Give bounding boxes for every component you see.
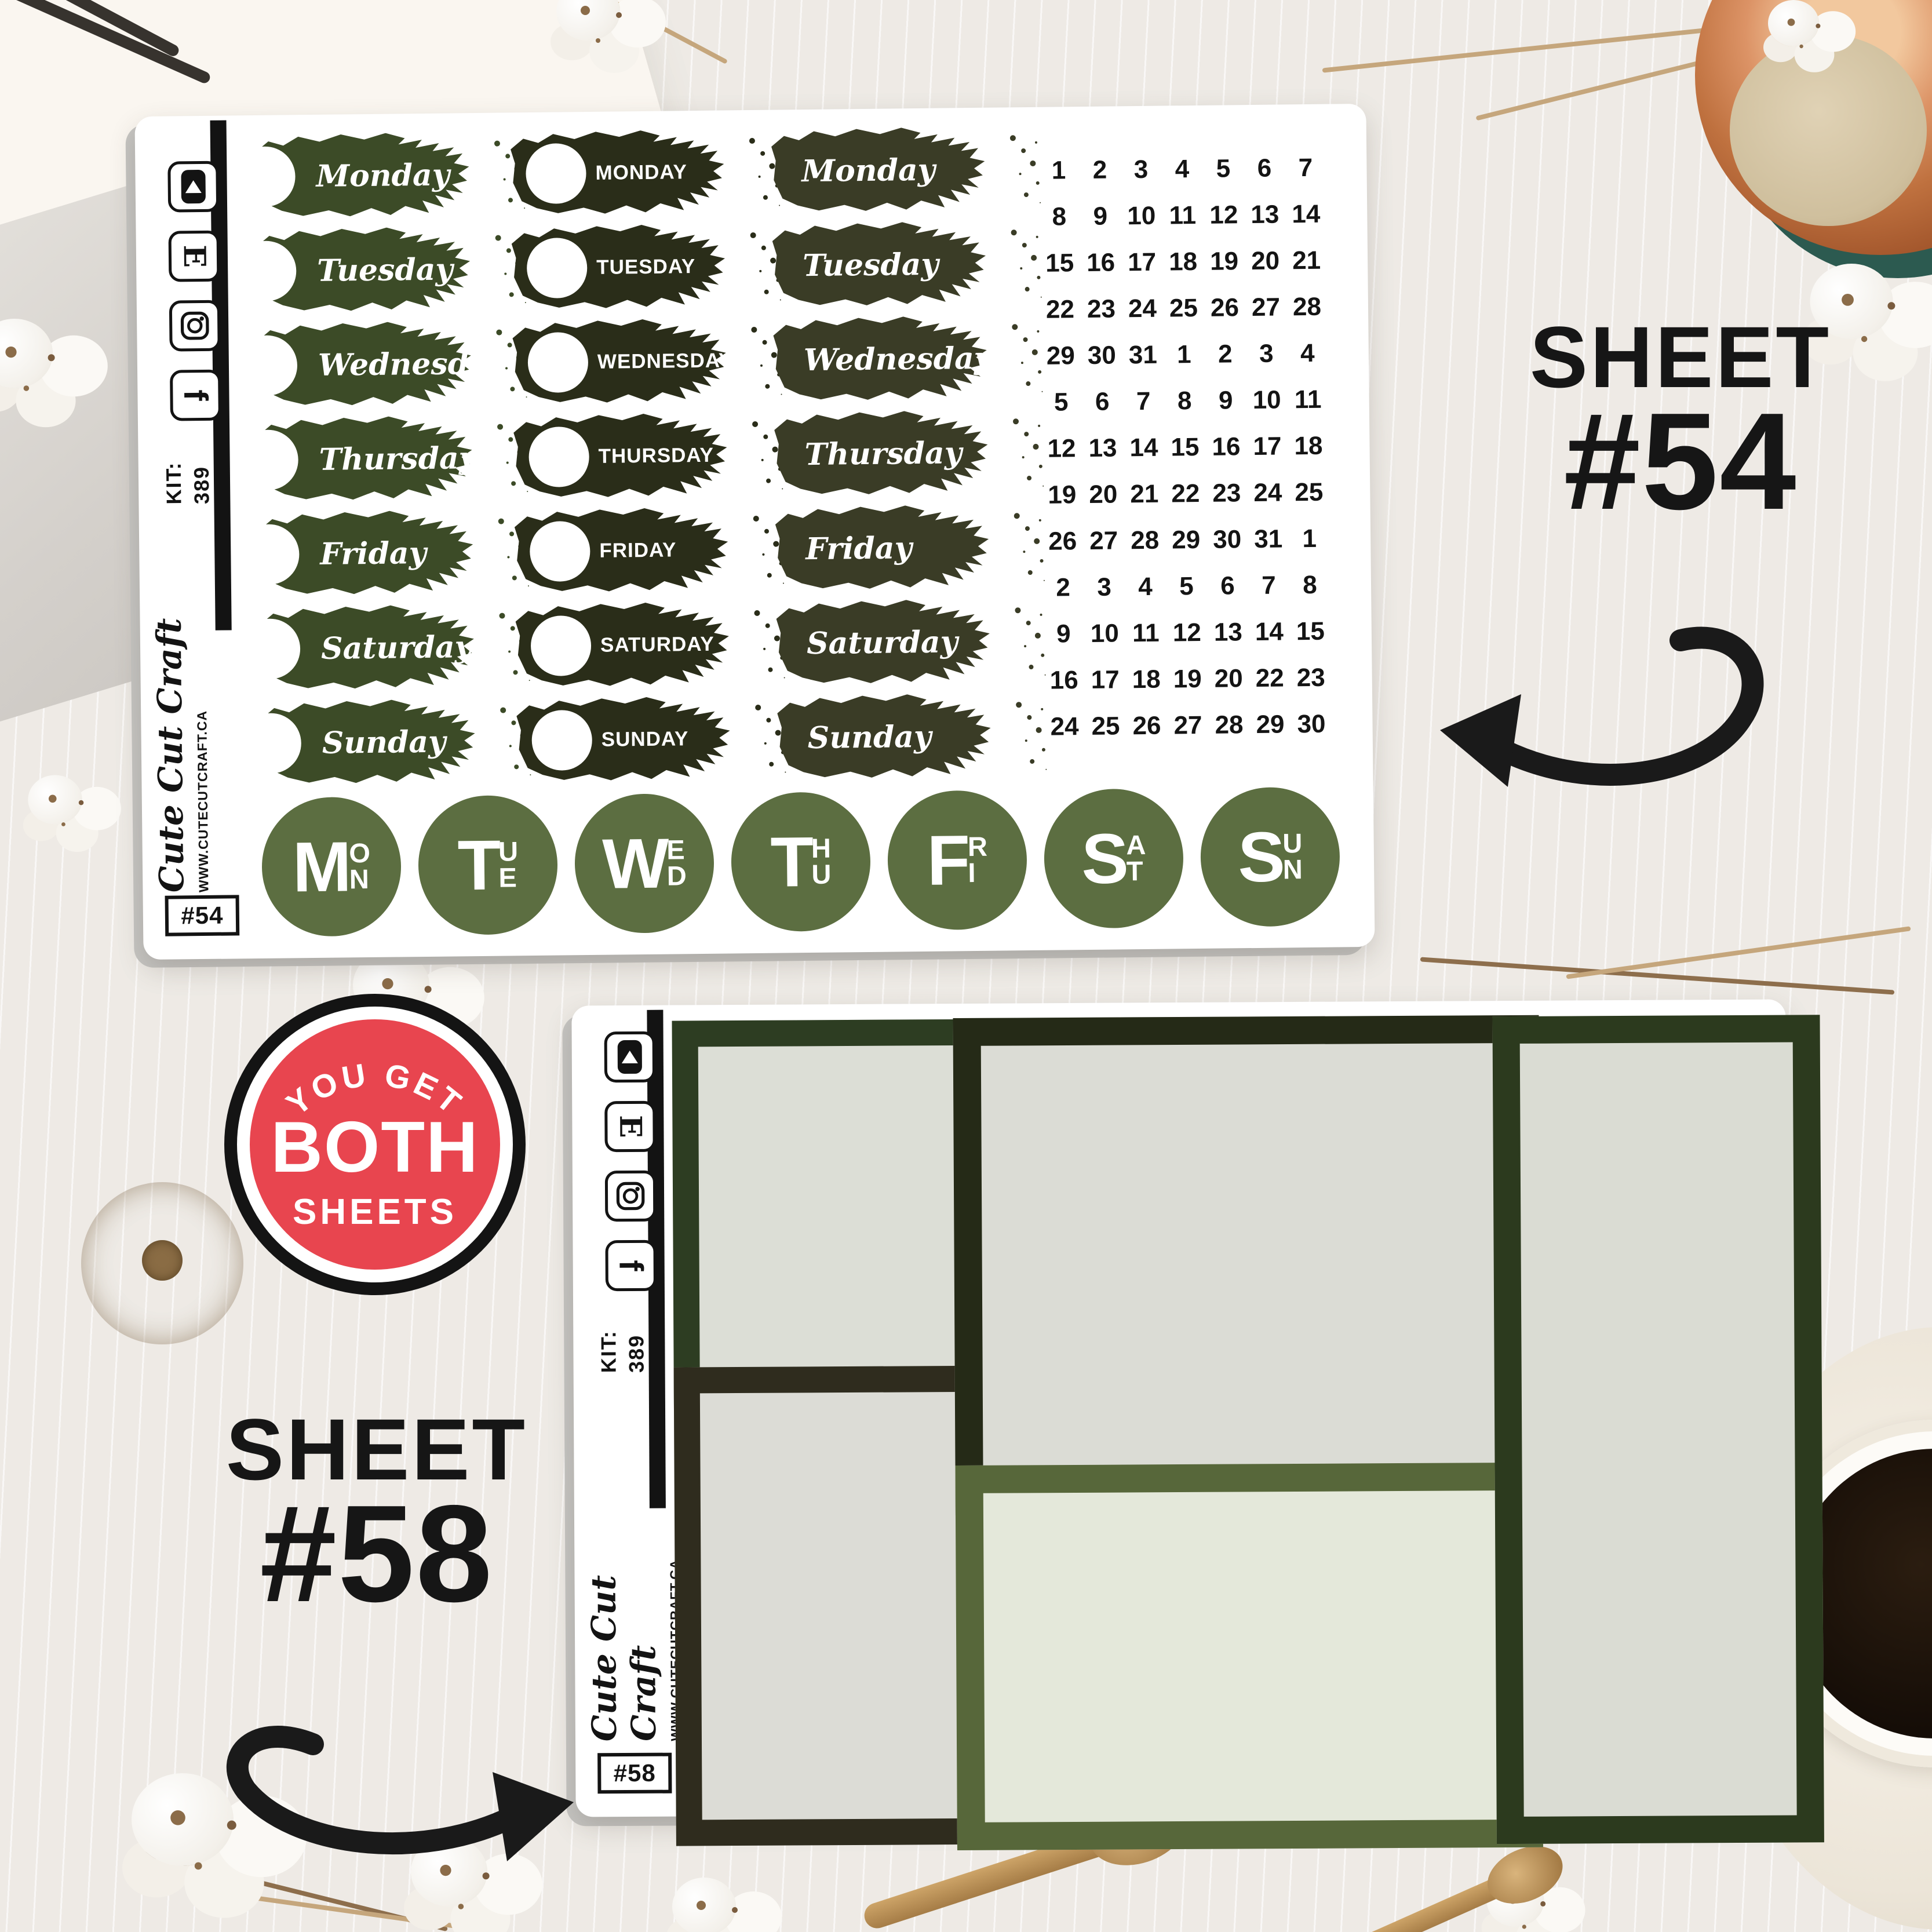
date-number: 25 (1288, 469, 1330, 516)
brand-block: Cute Cut Craft WWW.CUTECUTCRAFT.CA (584, 1475, 684, 1742)
day-dot-letter: U (811, 862, 831, 888)
date-number: 13 (1082, 425, 1124, 472)
sheet58-callout-number: #58 (168, 1491, 585, 1618)
product-photo: E f KIT: 389 Cute Cut Craft WWW.CUTECUTC… (0, 0, 1932, 1932)
paint-specks (495, 235, 501, 241)
paint-specks (1012, 324, 1018, 330)
date-number: 25 (1163, 285, 1205, 332)
punch-circle (531, 710, 592, 771)
date-number: 17 (1084, 657, 1126, 703)
day-label: Saturday (806, 597, 958, 687)
cotton-cluster (672, 1878, 736, 1932)
day-dot-sticker: TUE (418, 795, 559, 936)
date-number: 15 (1289, 608, 1331, 655)
paint-specks (750, 232, 756, 238)
date-number: 24 (1044, 703, 1085, 750)
facebook-icon-glyph: f (178, 389, 212, 401)
day-sticker: Friday (775, 502, 1026, 593)
kit-number: KIT: 389 (596, 1330, 648, 1373)
day-dot-letter: N (1283, 856, 1303, 883)
day-dot-sticker: THU (731, 792, 872, 932)
day-sticker: SUNDAY (516, 694, 767, 785)
punch-circle (528, 427, 589, 487)
day-sticker: Monday (771, 125, 1022, 215)
paint-specks (1013, 418, 1019, 424)
date-number: 22 (1249, 655, 1291, 702)
day-sticker: Tuesday (256, 224, 506, 315)
full-box-sticker-left-top (672, 1019, 994, 1414)
day-dot-small-letters: UN (1282, 830, 1303, 883)
paint-specks (1010, 135, 1016, 141)
date-number: 3 (1245, 330, 1287, 377)
date-number: 23 (1206, 470, 1248, 517)
date-number: 1 (1038, 147, 1080, 194)
dried-twig (1322, 24, 1738, 72)
instagram-icon-glyph (180, 311, 210, 341)
date-number: 26 (1126, 703, 1168, 750)
date-number: 6 (1244, 145, 1285, 192)
copper-bowl-inside (1730, 35, 1927, 226)
date-number: 31 (1248, 516, 1289, 563)
date-number: 20 (1082, 471, 1124, 518)
day-label: Saturday (320, 603, 472, 692)
date-number: 14 (1248, 608, 1290, 655)
day-dot-small-letters: ED (666, 837, 687, 890)
day-dot-small-letters: AT (1126, 832, 1146, 884)
date-number: 1 (1163, 331, 1205, 378)
paint-specks (752, 421, 758, 427)
date-number: 24 (1247, 469, 1289, 516)
punch-circle (238, 429, 298, 490)
date-number: 29 (1249, 701, 1291, 748)
date-number: 26 (1204, 285, 1246, 331)
date-number: 22 (1165, 471, 1206, 517)
paint-specks (497, 424, 503, 430)
paint-specks (1014, 513, 1020, 519)
day-sticker: Friday (260, 508, 510, 598)
kit-value: 389 (189, 461, 214, 504)
sticker-sheet-58: E f KIT: 389 Cute Cut Craft WWW.CUTECUTC… (571, 1000, 1789, 1817)
both-sheets-badge: YOU GET BOTH SHEETS (216, 985, 534, 1304)
day-dot-initial: T (457, 830, 501, 901)
day-sticker: Wednesday (257, 319, 508, 409)
date-number: 19 (1204, 238, 1245, 285)
cotton-cluster (28, 775, 82, 825)
arrow-to-sheet58 (168, 1709, 608, 1895)
punch-circle (530, 521, 590, 582)
day-sticker: Thursday (774, 408, 1025, 498)
date-number: 17 (1121, 239, 1163, 286)
date-number: 14 (1285, 191, 1327, 238)
sticker-sheet-54: E f KIT: 389 Cute Cut Craft WWW.CUTECUTC… (134, 104, 1375, 960)
full-box-sticker-mid-top (953, 1015, 1541, 1515)
date-number: 20 (1208, 655, 1249, 702)
date-number: 9 (1042, 611, 1084, 658)
day-dot-small-letters: RI (968, 834, 988, 886)
date-number: 4 (1286, 330, 1328, 377)
sheet-tag: #54 (165, 895, 240, 936)
date-number-grid: 1234567891011121314151617181920212223242… (1038, 145, 1332, 750)
date-number: 5 (1040, 379, 1082, 426)
brand-logo: Cute Cut Craft (584, 1475, 664, 1742)
date-number: 11 (1125, 610, 1167, 657)
kit-label: KIT: (596, 1330, 621, 1373)
play-icon (167, 161, 219, 213)
day-dot-sticker: SAT (1044, 788, 1184, 929)
date-number: 5 (1166, 563, 1208, 610)
cotton-cluster (1768, 0, 1819, 46)
date-number: 27 (1245, 284, 1287, 331)
paint-specks (496, 330, 502, 336)
day-label: Tuesday (316, 225, 453, 314)
day-label: SATURDAY (600, 600, 715, 690)
day-dot-letter: U (498, 839, 518, 865)
date-number: 22 (1040, 286, 1081, 333)
date-number: 19 (1167, 656, 1208, 703)
play-icon-glyph (618, 1040, 642, 1074)
punch-circle (240, 618, 301, 679)
date-number: 11 (1287, 377, 1329, 424)
date-number: 8 (1164, 378, 1205, 425)
paint-specks (755, 705, 761, 710)
date-number: 12 (1041, 425, 1082, 472)
instagram-icon (605, 1171, 656, 1222)
day-sticker: MONDAY (511, 127, 761, 218)
etsy-icon: E (604, 1101, 655, 1152)
play-icon (604, 1031, 655, 1082)
day-sticker: Wednesday (773, 314, 1023, 404)
date-number: 12 (1203, 192, 1245, 239)
date-number: 18 (1125, 657, 1167, 703)
date-number: 2 (1042, 564, 1084, 611)
paint-specks (498, 519, 504, 524)
day-label: Wednesday (318, 319, 506, 409)
sheet-tag: #58 (597, 1753, 672, 1794)
date-number: 16 (1205, 424, 1247, 471)
day-label: THURSDAY (598, 411, 715, 501)
day-dot-letter: N (349, 866, 371, 892)
punch-circle (527, 332, 588, 393)
day-label: WEDNESDAY (597, 316, 733, 406)
date-number: 3 (1120, 147, 1162, 194)
punch-circle (526, 143, 586, 204)
punch-circle (527, 238, 588, 298)
paint-specks (494, 141, 500, 147)
date-number: 29 (1040, 333, 1081, 380)
full-box-sticker-right (1492, 1015, 1824, 1844)
paint-specks (500, 708, 506, 713)
day-label: Thursday (319, 414, 477, 504)
date-number: 27 (1167, 702, 1209, 749)
brand-logo: Cute Cut Craft (150, 618, 192, 893)
date-number: 24 (1122, 286, 1164, 333)
date-number: 21 (1124, 471, 1165, 518)
date-number: 15 (1039, 240, 1081, 287)
day-sticker: THURSDAY (513, 411, 764, 501)
date-number: 27 (1083, 517, 1125, 564)
day-label: Wednesday (803, 314, 992, 404)
full-box-sticker-left-bottom (674, 1366, 996, 1846)
paint-specks (753, 516, 759, 522)
date-number: 28 (1124, 517, 1166, 564)
day-dot-initial: S (1238, 821, 1286, 892)
facebook-icon: f (170, 370, 221, 421)
instagram-icon-glyph (615, 1181, 646, 1211)
day-sticker: Thursday (258, 413, 509, 504)
day-dot-letter: I (968, 860, 987, 886)
day-dot-sticker: WED (574, 793, 715, 934)
date-number: 16 (1043, 657, 1085, 704)
date-number: 8 (1038, 194, 1080, 240)
etsy-icon-glyph: E (615, 1115, 645, 1138)
date-number: 7 (1285, 145, 1326, 192)
day-dot-initial: F (927, 825, 971, 896)
day-dot-letter: U (1282, 830, 1302, 856)
sheet58-callout: SHEET #58 (168, 1408, 585, 1617)
day-sticker: Monday (256, 130, 506, 220)
date-number: 3 (1084, 564, 1125, 611)
date-number: 12 (1166, 610, 1208, 657)
date-number: 23 (1081, 286, 1122, 333)
date-number: 2 (1079, 147, 1121, 194)
brand-block: Cute Cut Craft WWW.CUTECUTCRAFT.CA (149, 614, 212, 893)
facebook-icon: f (605, 1240, 656, 1291)
date-number: 16 (1080, 239, 1122, 286)
paint-specks (751, 327, 757, 333)
day-dot-small-letters: UE (498, 839, 519, 891)
date-number: 7 (1248, 562, 1290, 609)
paint-specks (1011, 229, 1017, 235)
date-number: 28 (1286, 284, 1328, 331)
date-number: 13 (1207, 609, 1249, 656)
badge-bottom-text: SHEETS (293, 1192, 457, 1232)
day-sticker: Sunday (777, 691, 1027, 782)
date-number: 10 (1084, 610, 1125, 657)
day-label: Sunday (807, 692, 932, 782)
day-dot-small-letters: ON (349, 840, 370, 892)
day-dot-initial: S (1081, 823, 1129, 894)
day-sticker: SATURDAY (515, 600, 765, 690)
day-dot-initial: T (770, 826, 814, 898)
date-number: 14 (1123, 425, 1165, 472)
day-dot-letter: R (968, 834, 987, 860)
paint-specks (754, 610, 760, 616)
paint-specks (1016, 702, 1022, 708)
day-column-script-circle: MondayTuesdayWednesdayThursdayFridaySatu… (256, 130, 512, 787)
day-sticker: Tuesday (772, 219, 1022, 309)
date-number: 5 (1202, 145, 1244, 192)
date-number: 25 (1085, 703, 1127, 750)
date-number: 26 (1042, 518, 1084, 565)
facebook-icon-glyph: f (614, 1260, 648, 1271)
day-dot-letter: A (1126, 832, 1146, 858)
day-dot-letter: T (1127, 858, 1146, 884)
date-number: 19 (1041, 472, 1083, 519)
day-label: FRIDAY (599, 506, 677, 595)
date-number: 2 (1204, 331, 1246, 378)
date-number: 6 (1207, 563, 1249, 610)
date-number: 15 (1164, 424, 1206, 471)
day-label: Monday (316, 130, 450, 220)
day-dot-sticker: MON (261, 796, 402, 937)
day-label: TUESDAY (596, 223, 696, 312)
date-number: 13 (1244, 191, 1286, 238)
day-dot-initial: M (292, 831, 352, 902)
date-number: 20 (1245, 238, 1286, 285)
date-number: 8 (1289, 562, 1331, 609)
date-number: 23 (1290, 655, 1332, 702)
date-number: 30 (1206, 516, 1248, 563)
day-dot-letter: H (811, 836, 831, 862)
date-number: 18 (1162, 239, 1204, 286)
day-label: SUNDAY (601, 695, 689, 784)
badge-middle-text: BOTH (271, 1107, 479, 1187)
date-number: 9 (1205, 377, 1246, 424)
date-number: 31 (1122, 332, 1164, 379)
etsy-icon: E (169, 231, 220, 282)
day-label: Friday (805, 504, 913, 593)
day-dot-sticker: SUN (1200, 786, 1341, 927)
date-number: 30 (1081, 332, 1122, 379)
day-sticker: Saturday (260, 602, 511, 692)
paint-specks (499, 613, 505, 619)
date-number: 29 (1165, 517, 1207, 564)
date-number: 1 (1289, 516, 1330, 563)
punch-circle (239, 524, 300, 585)
date-number: 30 (1291, 701, 1332, 748)
sheet54-callout-number: #54 (1472, 399, 1889, 526)
date-number: 7 (1122, 378, 1164, 425)
sheet54-callout: SHEET #54 (1472, 316, 1889, 525)
day-dot-small-letters: HU (811, 836, 832, 888)
day-dot-row: MONTUEWEDTHUFRISATSUN (261, 786, 1340, 936)
full-box-sticker-mid-bottom (956, 1463, 1543, 1850)
arrow-to-sheet54 (1408, 620, 1779, 817)
day-label: Tuesday (802, 220, 939, 309)
day-dot-letter: E (498, 865, 518, 891)
date-number: 4 (1125, 564, 1167, 611)
date-number: 21 (1286, 238, 1328, 285)
date-number: 11 (1162, 192, 1204, 239)
day-dot-sticker: FRI (887, 790, 1028, 931)
date-number: 28 (1208, 702, 1250, 749)
day-label: Thursday (804, 409, 963, 498)
date-number: 4 (1161, 146, 1203, 193)
punch-circle (531, 615, 592, 676)
dried-twig (1566, 926, 1911, 979)
date-number: 6 (1081, 378, 1123, 425)
day-sticker: TUESDAY (511, 222, 761, 312)
day-dot-letter: O (349, 840, 370, 866)
paint-specks (749, 138, 755, 144)
day-label: Friday (320, 509, 427, 598)
date-number: 17 (1246, 423, 1288, 470)
punch-circle (235, 146, 296, 207)
day-dot-initial: W (602, 828, 669, 899)
day-sticker: FRIDAY (515, 505, 765, 596)
day-label: Sunday (322, 698, 446, 787)
brand-website: WWW.CUTECUTCRAFT.CA (194, 710, 212, 892)
day-label: MONDAY (595, 128, 688, 217)
punch-circle (240, 713, 301, 774)
day-column-caps-circle: MONDAYTUESDAYWEDNESDAYTHURSDAYFRIDAYSATU… (511, 127, 767, 785)
paint-specks (1015, 607, 1020, 613)
day-sticker: Sunday (261, 697, 512, 787)
day-sticker: Saturday (776, 597, 1026, 687)
kit-number: KIT: 389 (162, 461, 214, 505)
kit-label: KIT: (162, 461, 187, 504)
day-dot-letter: D (667, 863, 687, 889)
play-icon-glyph (181, 170, 206, 203)
day-sticker: WEDNESDAY (512, 316, 763, 407)
date-number: 10 (1121, 193, 1162, 240)
punch-circle (236, 335, 297, 396)
day-dot-letter: E (666, 837, 686, 863)
day-column-script: MondayTuesdayWednesdayThursdayFridaySatu… (771, 125, 1027, 782)
date-number: 18 (1288, 423, 1329, 470)
day-label: Monday (801, 126, 936, 215)
etsy-icon-glyph: E (179, 245, 209, 268)
instagram-icon (169, 300, 221, 352)
date-number: 9 (1080, 193, 1121, 240)
kit-value: 389 (624, 1330, 648, 1373)
date-number: 10 (1246, 377, 1288, 424)
punch-circle (236, 240, 297, 301)
